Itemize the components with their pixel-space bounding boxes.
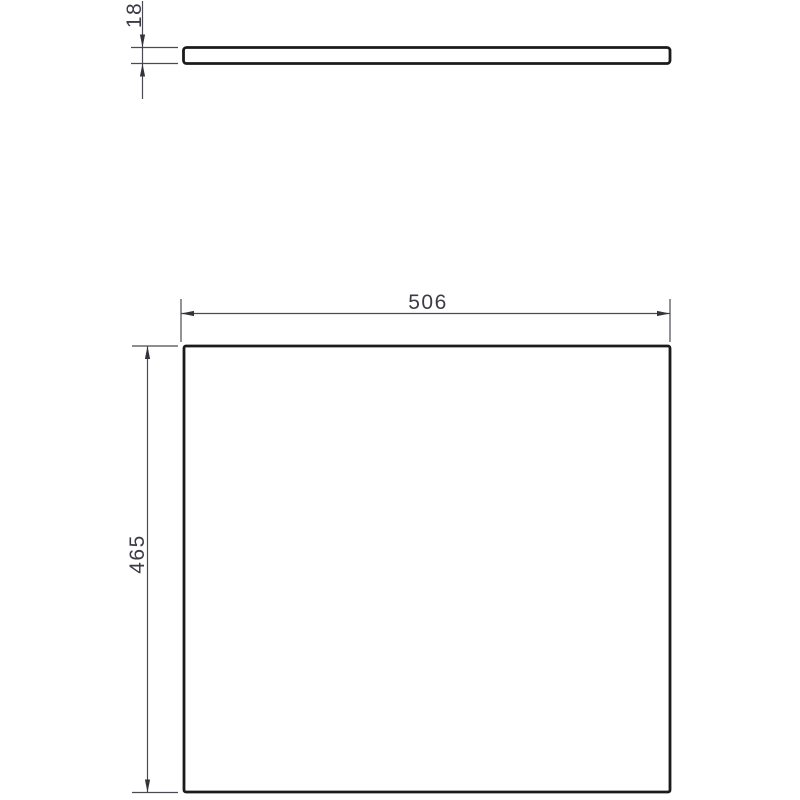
thickness-dimension-label: 18 (123, 2, 146, 28)
front-view (184, 346, 670, 792)
width-arrow-right-icon (657, 311, 670, 316)
height-dimension-label: 465 (126, 534, 149, 574)
dimension-width: 506 (181, 291, 670, 342)
width-dimension-label: 506 (408, 291, 448, 314)
edge-view (184, 48, 671, 64)
thickness-arrow-up-icon (140, 64, 145, 77)
dimension-height: 465 (126, 346, 178, 793)
height-arrow-down-icon (145, 780, 150, 793)
panel-edge-outline (184, 48, 671, 64)
drawing-sheet: 18 506 465 (0, 0, 800, 800)
technical-drawing: 18 506 465 (0, 0, 800, 800)
width-arrow-left-icon (181, 311, 194, 316)
height-arrow-up-icon (145, 346, 150, 359)
dimension-thickness: 18 (123, 1, 178, 99)
thickness-arrow-down-icon (140, 35, 145, 48)
panel-front-outline (184, 346, 670, 792)
